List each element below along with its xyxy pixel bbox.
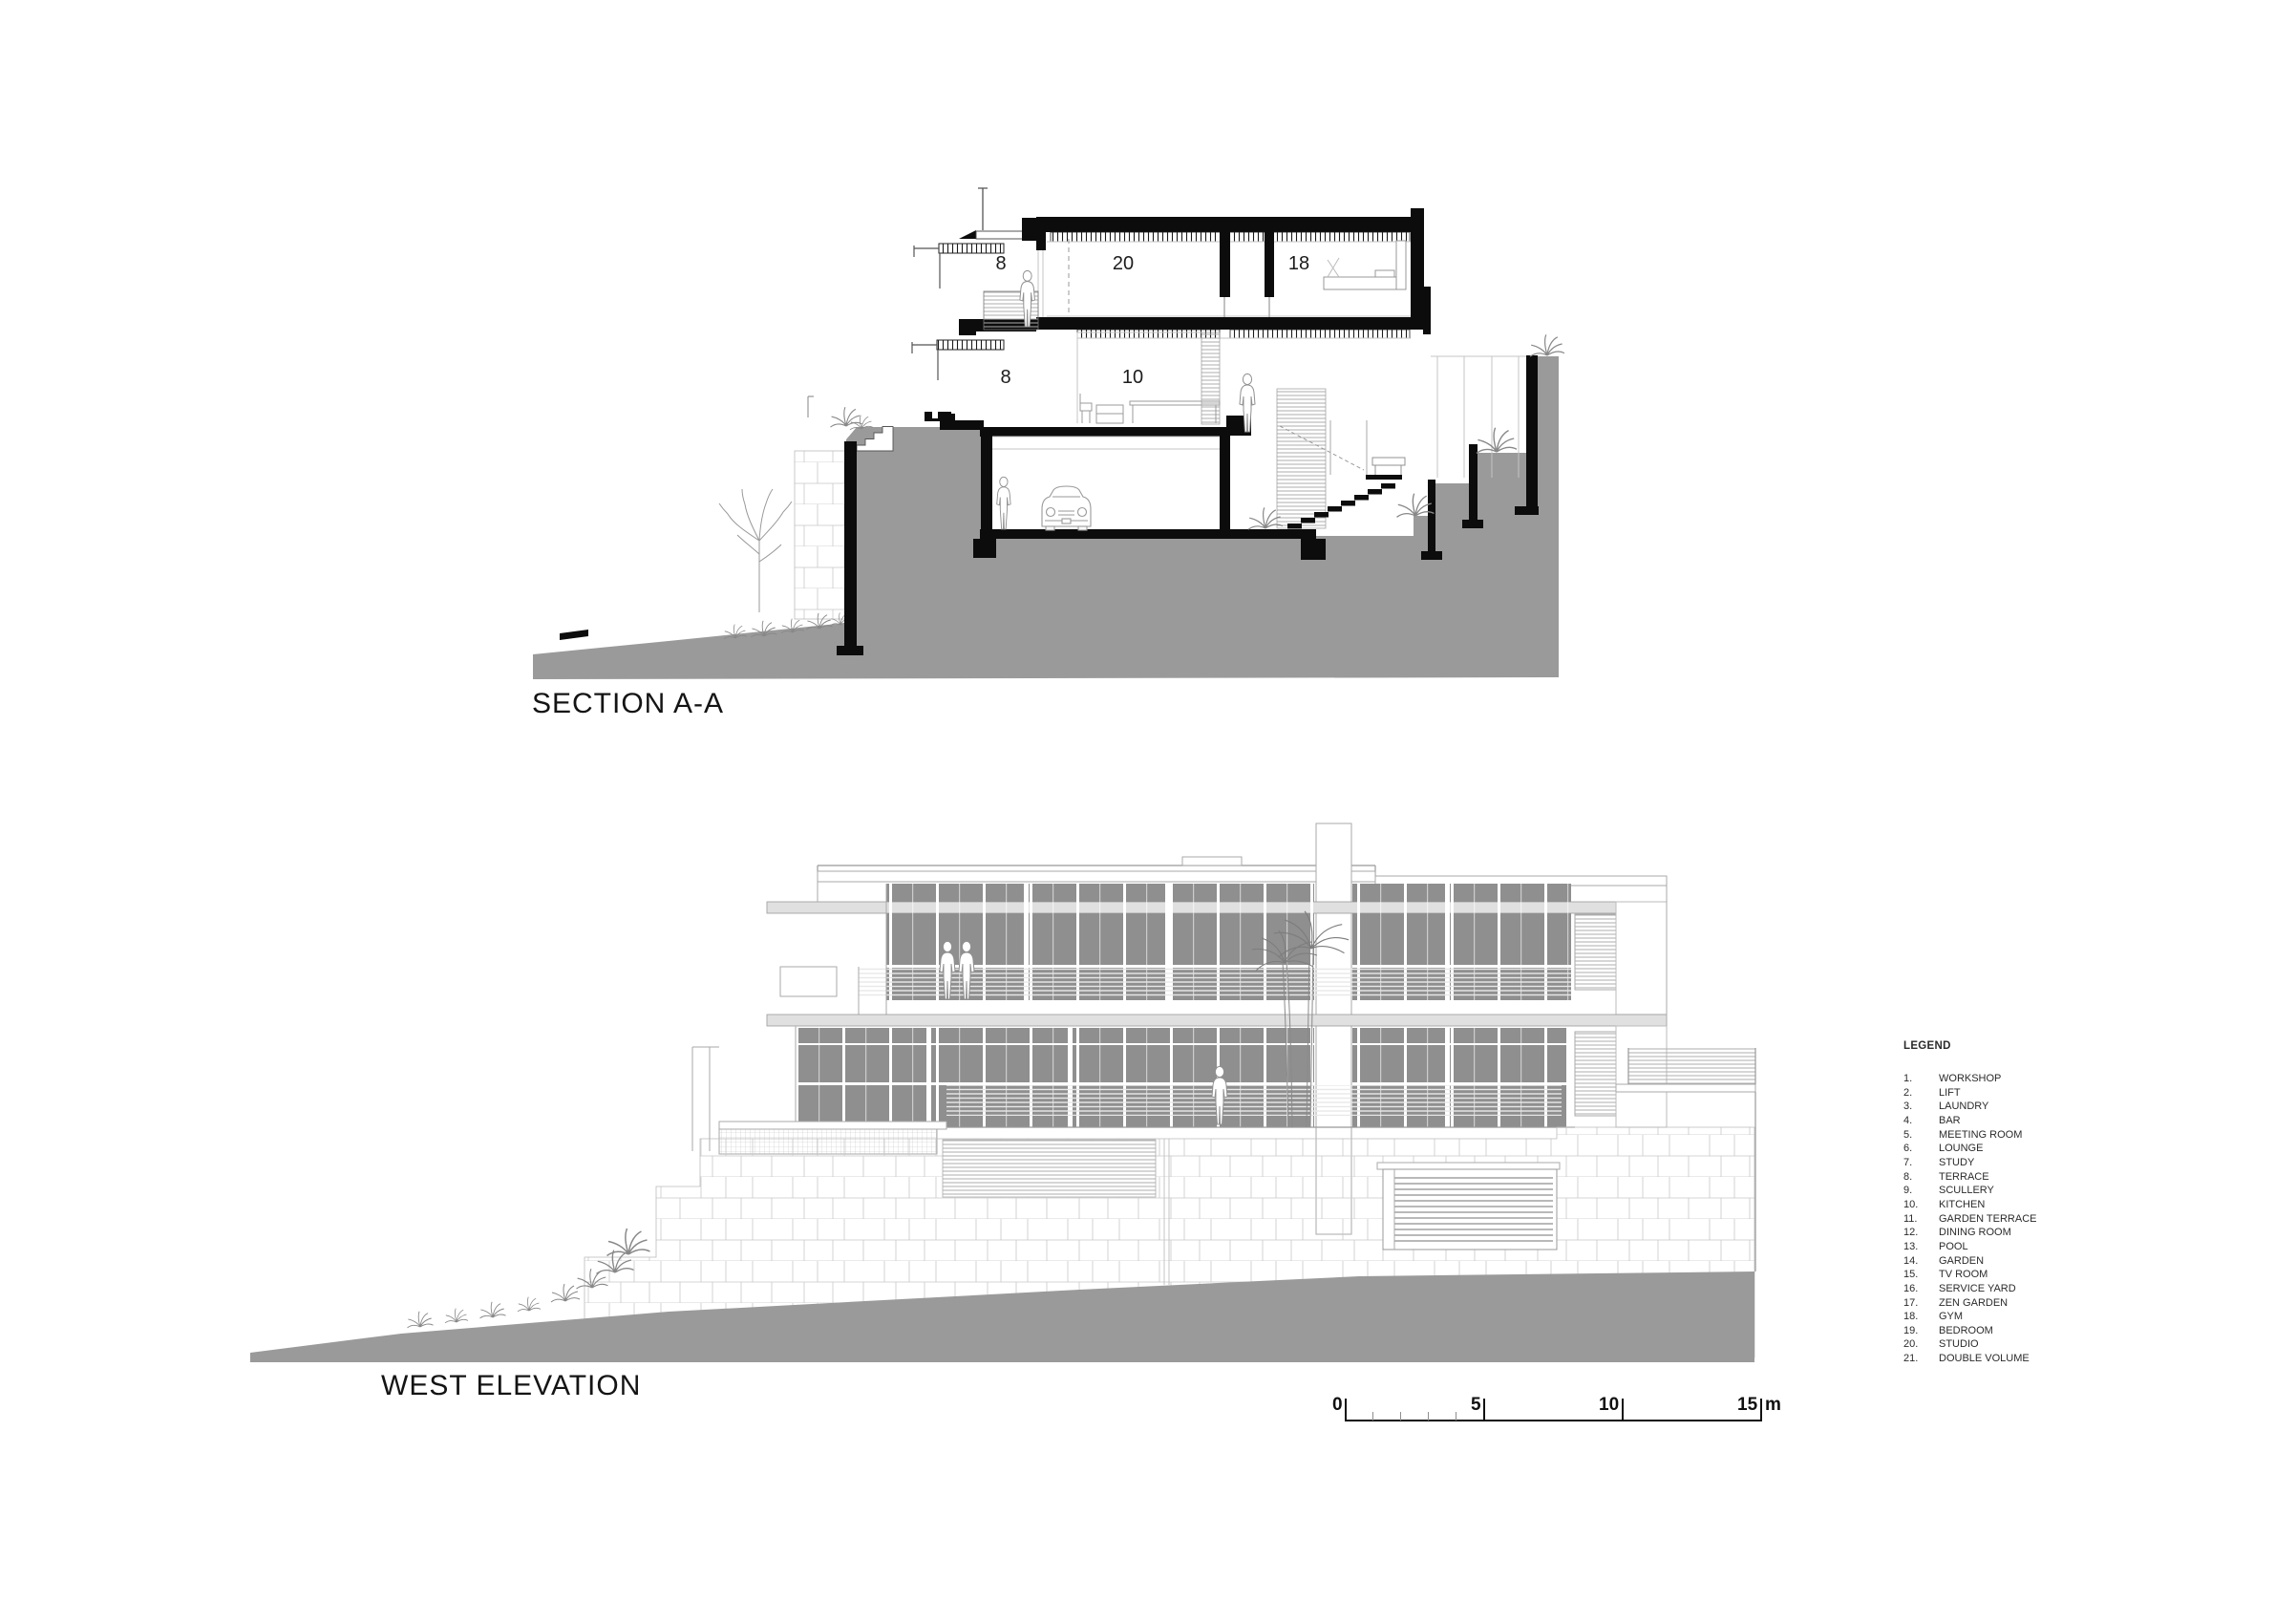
- section-title: SECTION A-A: [532, 688, 724, 720]
- lower-balustrade: [946, 1085, 1562, 1116]
- retaining-wall: [844, 441, 857, 648]
- legend-item: 8.TERRACE: [1903, 1170, 2152, 1185]
- bush: [551, 1284, 580, 1302]
- terrace-parapet: [780, 967, 837, 996]
- room-label: 20: [1113, 253, 1134, 274]
- legend-item-label: POOL: [1939, 1241, 1968, 1252]
- section-drawing: 8 20 18 8 10: [533, 188, 1564, 679]
- scale-label: 10: [1599, 1395, 1619, 1416]
- legend-item-number: 15.: [1903, 1268, 1939, 1282]
- legend-item-number: 3.: [1903, 1100, 1939, 1114]
- end-wall: [1616, 902, 1667, 1015]
- scale-tick: [1760, 1399, 1762, 1421]
- drawing-canvas: 8 20 18 8 10: [0, 0, 2296, 1624]
- legend-title: LEGEND: [1903, 1040, 2152, 1052]
- legend-item-number: 9.: [1903, 1184, 1939, 1198]
- legend-item-label: KITCHEN: [1939, 1199, 1985, 1210]
- legend-item-number: 12.: [1903, 1226, 1939, 1240]
- legend-item: 20.STUDIO: [1903, 1337, 2152, 1352]
- legend-item: 12.DINING ROOM: [1903, 1226, 2152, 1240]
- legend-item: 7.STUDY: [1903, 1156, 2152, 1170]
- left-wing-wall: [692, 1047, 719, 1151]
- roof-pole: [978, 188, 988, 230]
- bench: [1372, 458, 1405, 475]
- kitchen-furniture: [1080, 394, 1220, 423]
- survey-pole: [808, 396, 814, 417]
- legend-item: 1.WORKSHOP: [1903, 1072, 2152, 1086]
- bush: [445, 1309, 468, 1323]
- legend-item-label: BAR: [1939, 1115, 1961, 1126]
- plant: [1477, 428, 1517, 454]
- legend-item-label: LAUNDRY: [1939, 1100, 1988, 1112]
- bush: [480, 1302, 506, 1318]
- room-label: 18: [1288, 253, 1309, 274]
- legend-item: 10.KITCHEN: [1903, 1198, 2152, 1212]
- scale-minor-tick: [1456, 1412, 1456, 1421]
- legend-item-number: 17.: [1903, 1296, 1939, 1311]
- mid-slab: [1036, 317, 1423, 330]
- legend-item: 6.LOUNGE: [1903, 1142, 2152, 1156]
- legend-item: 15.TV ROOM: [1903, 1268, 2152, 1282]
- legend-item: 21.DOUBLE VOLUME: [1903, 1352, 2152, 1366]
- drawing-sheet: 8 20 18 8 10: [0, 0, 2296, 1624]
- legend-item: 17.ZEN GARDEN: [1903, 1296, 2152, 1311]
- legend-item-number: 21.: [1903, 1352, 1939, 1366]
- legend-item-number: 18.: [1903, 1310, 1939, 1324]
- legend-item-label: GARDEN: [1939, 1255, 1984, 1267]
- scale-bar-line: [1345, 1420, 1761, 1421]
- legend-item-number: 4.: [1903, 1114, 1939, 1128]
- scale-tick: [1483, 1399, 1485, 1421]
- legend-item-label: DOUBLE VOLUME: [1939, 1353, 2030, 1364]
- room-label: 10: [1122, 367, 1143, 388]
- legend-item-label: MEETING ROOM: [1939, 1129, 2022, 1141]
- stair-screen: [1201, 332, 1220, 424]
- legend-item-label: SCULLERY: [1939, 1185, 1994, 1196]
- legend-item-label: DINING ROOM: [1939, 1227, 2011, 1238]
- legend-item: 4.BAR: [1903, 1114, 2152, 1128]
- legend-item-label: LOUNGE: [1939, 1143, 1983, 1154]
- scale-minor-tick: [1372, 1412, 1373, 1421]
- terrace-railing-lower: [912, 340, 1004, 380]
- ground-slab: [980, 427, 1230, 437]
- terrace-slab: [719, 1122, 946, 1129]
- legend-item: 3.LAUNDRY: [1903, 1100, 2152, 1114]
- bed: [1324, 241, 1406, 289]
- person-figure: [997, 477, 1010, 529]
- legend-item-label: STUDIO: [1939, 1338, 1979, 1350]
- legend-item-number: 1.: [1903, 1072, 1939, 1086]
- legend-item-label: TERRACE: [1939, 1171, 1989, 1183]
- legend-item-number: 20.: [1903, 1337, 1939, 1352]
- scale-tick: [1622, 1399, 1624, 1421]
- scale-minor-tick: [1400, 1412, 1401, 1421]
- scale-label: 15: [1737, 1395, 1757, 1416]
- legend-item-label: ZEN GARDEN: [1939, 1297, 2008, 1309]
- garage-door: [1377, 1163, 1560, 1250]
- legend-item-number: 10.: [1903, 1198, 1939, 1212]
- legend-item-label: LIFT: [1939, 1087, 1961, 1099]
- retaining-wall-footing: [837, 646, 863, 655]
- scale-minor-tick: [1428, 1412, 1429, 1421]
- legend-item-label: GYM: [1939, 1311, 1963, 1322]
- footing: [1301, 539, 1326, 560]
- stone-wall-face: [795, 451, 845, 619]
- legend-item: 16.SERVICE YARD: [1903, 1282, 2152, 1296]
- room-label: 8: [995, 253, 1006, 274]
- end-wall: [1411, 217, 1424, 330]
- legend-item-number: 5.: [1903, 1128, 1939, 1143]
- legend-item: 14.GARDEN: [1903, 1254, 2152, 1269]
- legend-item-label: STUDY: [1939, 1157, 1974, 1168]
- legend-item-number: 6.: [1903, 1142, 1939, 1156]
- floor-band: [767, 1015, 1667, 1026]
- legend-item-number: 16.: [1903, 1282, 1939, 1296]
- legend-item-number: 8.: [1903, 1170, 1939, 1185]
- slope-step: [560, 630, 588, 640]
- legend-item-number: 2.: [1903, 1086, 1939, 1100]
- legend-item-label: GARDEN TERRACE: [1939, 1213, 2036, 1225]
- legend-item: 19.BEDROOM: [1903, 1324, 2152, 1338]
- elevation-drawing: [250, 823, 1755, 1362]
- legend-list: 1.WORKSHOP2.LIFT3.LAUNDRY4.BAR5.MEETING …: [1903, 1072, 2152, 1366]
- room-label: 8: [1000, 367, 1010, 388]
- legend-item: 5.MEETING ROOM: [1903, 1128, 2152, 1143]
- legend: LEGEND 1.WORKSHOP2.LIFT3.LAUNDRY4.BAR5.M…: [1903, 1040, 2152, 1366]
- garage-floor-slab: [980, 529, 1316, 539]
- garage-wall: [981, 437, 992, 530]
- footing: [973, 539, 996, 558]
- legend-item: 2.LIFT: [1903, 1086, 2152, 1100]
- plant: [1530, 334, 1564, 356]
- bush: [408, 1312, 434, 1328]
- car: [1042, 486, 1091, 530]
- legend-item: 13.POOL: [1903, 1240, 2152, 1254]
- legend-item-number: 19.: [1903, 1324, 1939, 1338]
- legend-item-number: 7.: [1903, 1156, 1939, 1170]
- legend-item: 18.GYM: [1903, 1310, 2152, 1324]
- scale-bar: 0 5 10 15 m: [1335, 1393, 1784, 1427]
- scale-unit: m: [1765, 1395, 1781, 1416]
- legend-item: 9.SCULLERY: [1903, 1184, 2152, 1198]
- elevation-title: WEST ELEVATION: [381, 1370, 641, 1402]
- legend-item: 11.GARDEN TERRACE: [1903, 1212, 2152, 1227]
- partition-wall: [1265, 226, 1274, 297]
- roof-skylight: [1182, 857, 1242, 865]
- partition-wall: [1220, 226, 1230, 297]
- legend-item-number: 11.: [1903, 1212, 1939, 1227]
- roof-fascia: [818, 871, 1375, 882]
- legend-item-label: SERVICE YARD: [1939, 1283, 2016, 1294]
- legend-item-number: 13.: [1903, 1240, 1939, 1254]
- scale-label: 0: [1332, 1395, 1343, 1416]
- scale-label: 5: [1471, 1395, 1481, 1416]
- scale-tick: [1345, 1399, 1347, 1421]
- legend-item-label: BEDROOM: [1939, 1325, 1993, 1336]
- garage-wall: [1220, 436, 1230, 529]
- legend-item-label: WORKSHOP: [1939, 1073, 2001, 1084]
- garden-stairs: [1277, 389, 1405, 529]
- tree: [719, 489, 792, 612]
- legend-item-label: TV ROOM: [1939, 1269, 1988, 1280]
- terrace-railing-upper: [914, 244, 1004, 288]
- legend-item-number: 14.: [1903, 1254, 1939, 1269]
- bush: [518, 1297, 541, 1312]
- section-building: [940, 188, 1564, 560]
